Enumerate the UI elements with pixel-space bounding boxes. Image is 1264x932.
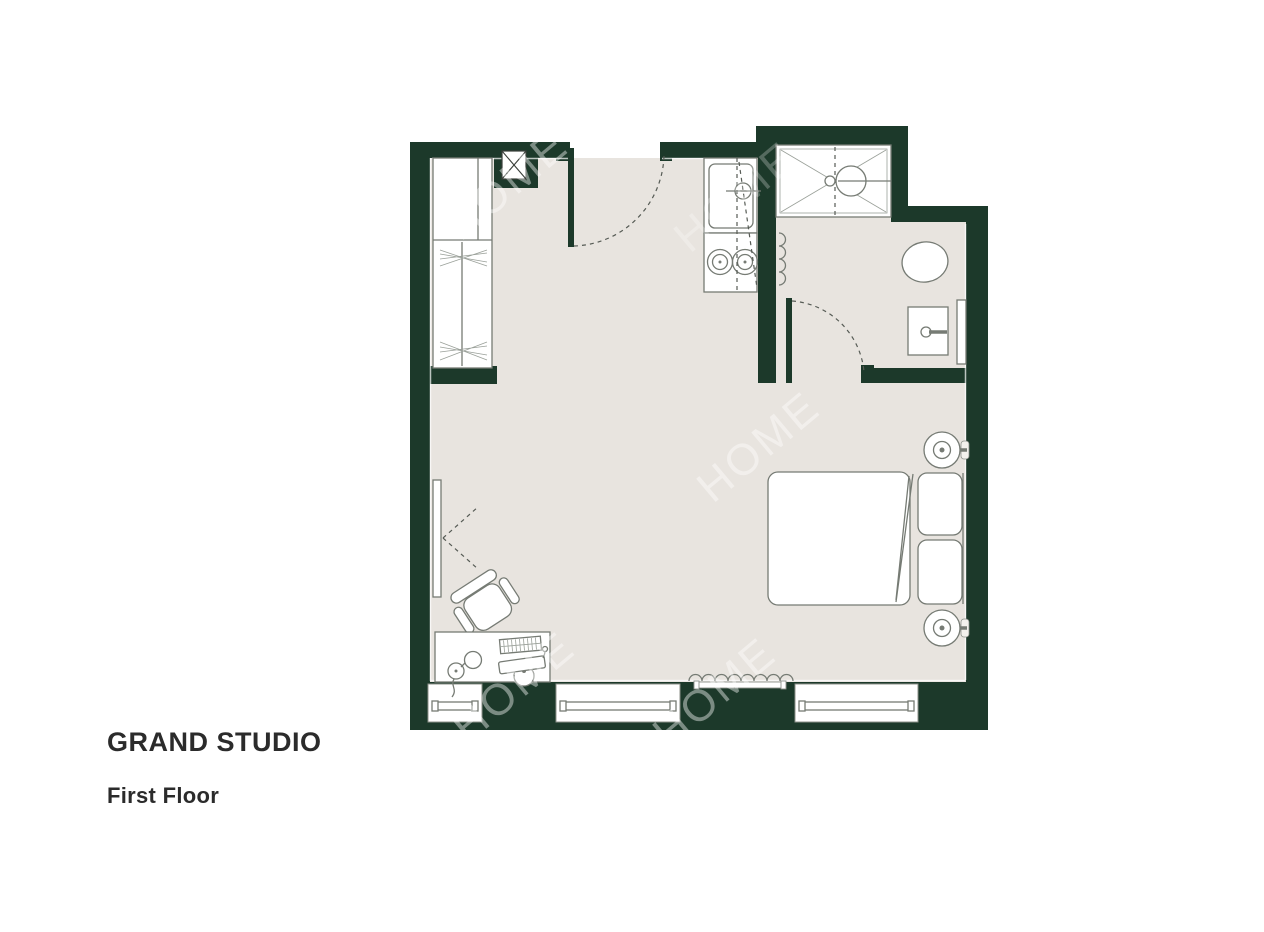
plan-title: GRAND STUDIO — [107, 727, 322, 758]
pillow-bottom — [918, 540, 962, 604]
wall-shower-right — [891, 126, 908, 214]
wall-left — [410, 142, 430, 730]
plan-subtitle: First Floor — [107, 783, 219, 809]
mirror — [957, 300, 966, 364]
washbasin — [908, 307, 948, 355]
shower-valve — [825, 176, 835, 186]
wall-right — [966, 206, 988, 730]
bathroom-door-leaf — [786, 298, 792, 383]
pillow-top — [918, 473, 962, 535]
window-3 — [795, 684, 918, 722]
wall-top-mid — [660, 142, 758, 158]
wall-wardrobe-stub — [410, 366, 497, 384]
wall-bath-bottom — [861, 368, 966, 383]
